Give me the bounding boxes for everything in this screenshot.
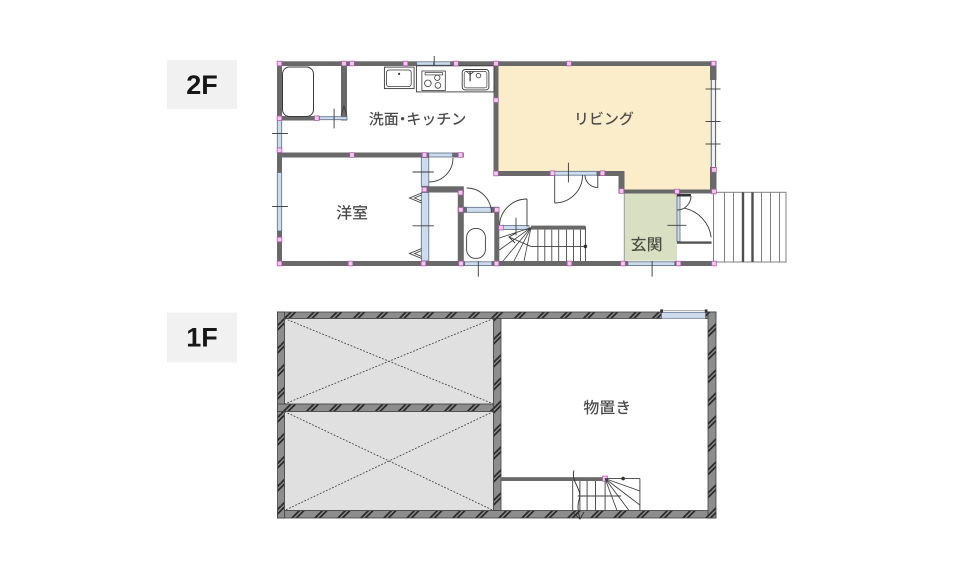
svg-text:1F: 1F — [186, 323, 218, 353]
svg-text:2F: 2F — [186, 70, 218, 100]
